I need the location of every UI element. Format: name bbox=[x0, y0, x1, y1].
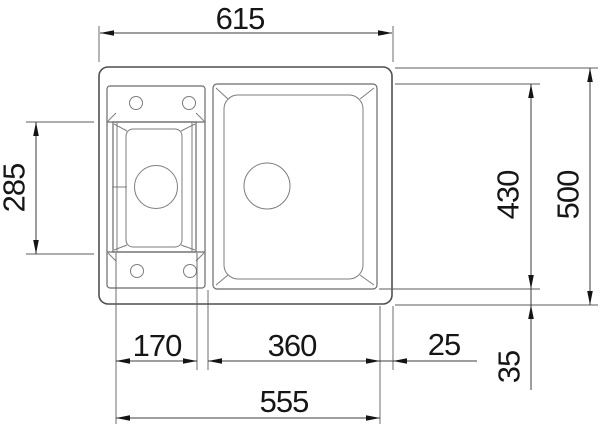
dim-right-edge-gap: 25 bbox=[380, 327, 477, 364]
dim-bowl-depth-label: 430 bbox=[491, 170, 526, 219]
large-bowl-rim bbox=[213, 84, 377, 289]
small-bowl-bevel-bl bbox=[114, 245, 127, 250]
dim-small-bowl-width: 170 bbox=[116, 328, 197, 364]
dim-overall-width-label: 615 bbox=[216, 1, 265, 36]
arrowhead-down bbox=[587, 291, 593, 305]
small-bowl-unit bbox=[107, 86, 205, 288]
dim-right-edge-gap-label: 25 bbox=[428, 327, 460, 362]
top-ledge-bevel-left bbox=[108, 113, 116, 121]
arrowhead-left bbox=[100, 30, 114, 36]
arrowhead-up bbox=[528, 84, 534, 98]
dim-large-bowl-width: 360 bbox=[208, 328, 380, 364]
dim-small-bowl-opening: 285 bbox=[0, 122, 94, 254]
faucet-hole-top-left bbox=[130, 97, 143, 110]
small-bowl-bevel-tr bbox=[181, 124, 195, 131]
bottom-ledge-bevel-left bbox=[108, 253, 116, 261]
dim-bottom-span: 555 bbox=[116, 384, 380, 421]
large-bowl-bevel-bl bbox=[216, 275, 228, 285]
large-bowl bbox=[213, 84, 377, 289]
arrowhead-right bbox=[366, 415, 380, 421]
dim-bowl-depth: 430 bbox=[379, 84, 540, 289]
large-bowl-bottom bbox=[224, 95, 363, 279]
large-bowl-drain bbox=[244, 163, 290, 209]
arrowhead-left bbox=[116, 358, 130, 364]
large-bowl-bevel-tr bbox=[360, 88, 374, 99]
arrowhead-down bbox=[33, 240, 39, 254]
arrowhead-left bbox=[116, 415, 130, 421]
drawing-canvas: 615 285 430 500 35 bbox=[0, 0, 600, 430]
arrowhead-up bbox=[33, 122, 39, 136]
faucet-hole-top-right bbox=[183, 97, 196, 110]
small-bowl-bevel-tl bbox=[114, 124, 127, 131]
top-ledge-bevel-right bbox=[196, 113, 204, 121]
large-bowl-bevel-br bbox=[360, 275, 374, 285]
dim-large-bowl-width-label: 360 bbox=[268, 328, 317, 363]
dim-overall-depth-label: 500 bbox=[551, 170, 586, 219]
dim-bottom-offset-label: 35 bbox=[492, 351, 527, 383]
arrowhead-up bbox=[587, 68, 593, 82]
arrowhead-up bbox=[528, 305, 534, 319]
arrowhead-down bbox=[528, 275, 534, 289]
arrowhead-right bbox=[378, 30, 392, 36]
dim-bottom-span-label: 555 bbox=[260, 384, 309, 419]
arrowhead-right bbox=[183, 358, 197, 364]
small-bowl-drain bbox=[135, 166, 178, 209]
large-bowl-bevel-tl bbox=[216, 88, 228, 99]
arrowhead-left bbox=[208, 358, 222, 364]
arrowhead-left-outside bbox=[393, 358, 407, 364]
dim-bottom-offset: 35 bbox=[492, 289, 534, 390]
arrowhead-right bbox=[366, 358, 380, 364]
small-bowl-bevel-br bbox=[181, 245, 195, 250]
sink-technical-drawing: 615 285 430 500 35 bbox=[0, 0, 600, 430]
dim-small-bowl-width-label: 170 bbox=[133, 328, 182, 363]
faucet-hole-bottom-left bbox=[131, 265, 144, 278]
dim-overall-width: 615 bbox=[99, 1, 393, 62]
dim-small-bowl-opening-label: 285 bbox=[0, 164, 32, 213]
faucet-hole-bottom-right bbox=[184, 265, 197, 278]
